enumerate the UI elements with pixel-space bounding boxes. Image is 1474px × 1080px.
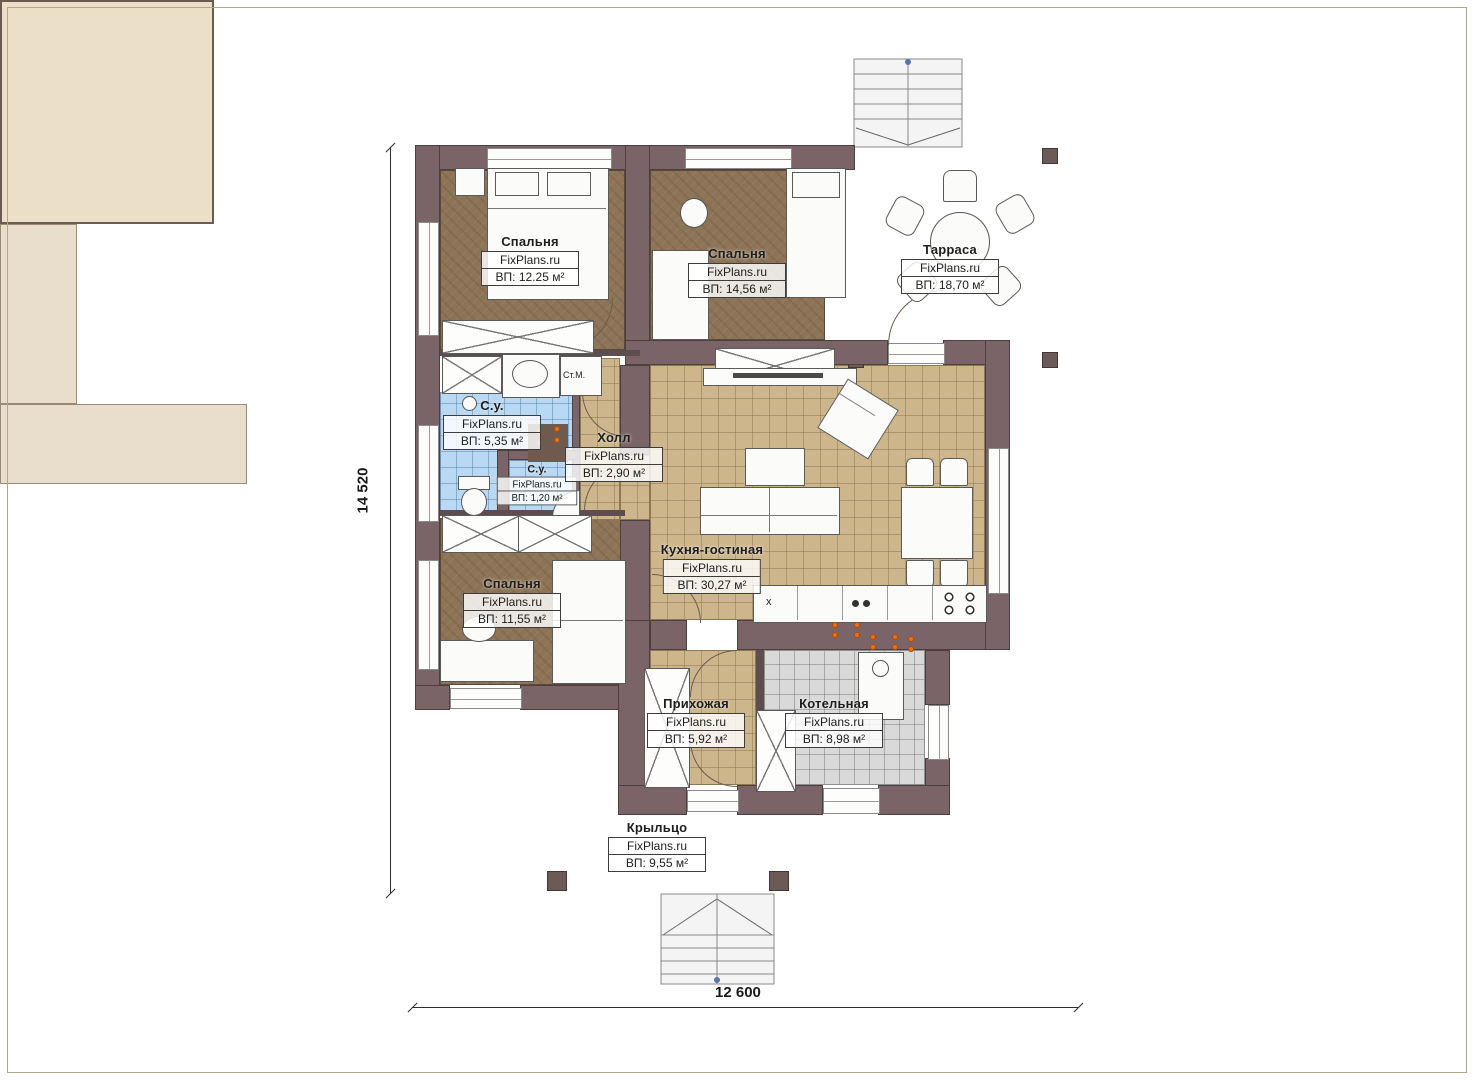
window [823,788,880,814]
wall [625,145,650,365]
room-name: Кухня-гостиная [661,542,763,557]
pillow [792,172,840,198]
room-name: Холл [565,430,663,445]
room-info-box: FixPlans.ru ВП: 11,55 м² [463,593,561,628]
window [988,448,1009,594]
dimension-width-label: 12 600 [715,984,761,1001]
room-info-box: FixPlans.ru ВП: 5,35 м² [443,415,541,450]
room-brand: FixPlans.ru [566,448,662,465]
room-info-box: FixPlans.ru ВП: 30,27 м² [663,559,761,594]
coffee-table [745,448,805,486]
room-brand: FixPlans.ru [689,264,785,281]
window [450,688,522,709]
dimension-height-label: 14 520 [354,468,371,514]
room-area: ВП: 18,70 м² [902,277,998,293]
chair-icon [943,170,977,202]
room-info-box: FixPlans.ru ВП: 2,90 м² [565,447,663,482]
chair-icon [940,560,968,588]
wall [415,685,450,710]
room-label-terrace: Тарраса FixPlans.ru ВП: 18,70 м² [901,242,999,294]
room-name: Тарраса [901,242,999,257]
counter-divider [842,586,843,620]
room-info-box: FixPlans.ru ВП: 8,98 м² [785,713,883,748]
room-brand: FixPlans.ru [648,714,744,731]
radiator-dot [554,426,560,432]
room-label-boiler: Котельная FixPlans.ru ВП: 8,98 м² [785,696,883,748]
room-name: Спальня [463,576,561,591]
window [685,148,792,169]
terrace-post [1042,352,1058,368]
cabinet-icon [442,356,502,394]
sink-bowl-icon [512,360,548,388]
blanket-line [488,208,606,209]
terrace-stairs [853,58,963,148]
dimension-line-horizontal [412,1007,1078,1008]
heater-dot [892,644,898,650]
room-brand: FixPlans.ru [444,416,540,433]
heater-dot [892,634,898,640]
room-brand: FixPlans.ru [464,594,560,611]
room-name: Спальня [481,234,579,249]
chair-icon [940,458,968,486]
room-info-box: FixPlans.ru ВП: 18,70 м² [901,259,999,294]
tv-icon [733,373,823,378]
dimension-line-vertical [390,147,391,893]
room-label-bedroom-2: Спальня FixPlans.ru ВП: 14,56 м² [688,246,786,298]
terrace-floor [0,0,214,224]
pillow [547,172,591,196]
sofa-line [553,620,623,621]
nightstand [455,168,485,196]
window [418,560,439,670]
wall [925,650,950,705]
room-info-box: FixPlans.ru ВП: 5,92 м² [647,713,745,748]
window [418,222,439,336]
chair-icon [906,458,934,486]
chair-icon [906,560,934,588]
heater-dot [870,644,876,650]
room-brand: FixPlans.ru [482,252,578,269]
room-area: ВП: 8,98 м² [786,731,882,747]
room-brand: FixPlans.ru [902,260,998,277]
counter-divider [932,586,933,620]
porch-post [547,871,567,891]
wardrobe-icon [518,515,592,553]
porch-stairs [660,893,775,985]
room-name: Прихожая [647,696,745,711]
counter-mark: x [766,596,772,608]
window [487,148,612,169]
counter-divider [887,586,888,620]
wardrobe-icon [442,515,520,553]
room-name: Крыльцо [608,820,706,835]
room-label-bedroom-1: Спальня FixPlans.ru ВП: 12.25 м² [481,234,579,286]
room-label-porch: Крыльцо FixPlans.ru ВП: 9,55 м² [608,820,706,872]
wardrobe-icon [442,320,594,354]
heater-dot [832,632,838,638]
room-label-bedroom-3: Спальня FixPlans.ru ВП: 11,55 м² [463,576,561,628]
room-label-kitchen-living: Кухня-гостиная FixPlans.ru ВП: 30,27 м² [661,542,763,594]
window [418,425,439,522]
room-area: ВП: 12.25 м² [482,269,578,285]
sofa-divider [769,488,770,532]
room-brand: FixPlans.ru [609,838,705,855]
room-name: Котельная [785,696,883,711]
room-label-hall: Холл FixPlans.ru ВП: 2,90 м² [565,430,663,482]
heater-dot [854,622,860,628]
pillow [495,172,539,196]
sofa [700,487,840,535]
toilet-bowl-icon [461,488,487,516]
room-area: ВП: 11,55 м² [464,611,560,627]
room-area: ВП: 30,27 м² [664,577,760,593]
radiator-dot [554,437,560,443]
room-area: ВП: 5,92 м² [648,731,744,747]
wall [618,785,687,815]
floor-plan-canvas: Ст.М. x [0,0,1474,1080]
heater-dot [908,636,914,642]
sink-dot-icon [863,600,870,607]
room-area: ВП: 9,55 м² [609,855,705,871]
stove-icon [938,589,982,617]
entry-door [687,790,739,812]
window [928,705,949,760]
dining-table [901,487,973,559]
sofa [552,560,626,684]
sink-dot-icon [852,600,859,607]
heater-dot [908,646,914,652]
terrace-post [1042,148,1058,164]
terrace-door-opening [888,343,945,364]
counter-divider [797,586,798,620]
chair-icon [680,198,708,228]
room-name: Спальня [688,246,786,261]
washing-machine-label: Ст.М. [563,370,585,380]
room-name: С.у. [443,398,541,413]
room-brand: FixPlans.ru [664,560,760,577]
boiler-gauge-icon [872,660,889,677]
wall [878,785,950,815]
room-area: ВП: 14,56 м² [689,281,785,297]
room-label-bathroom-1: С.у. FixPlans.ru ВП: 5,35 м² [443,398,541,450]
room-info-box: FixPlans.ru ВП: 14,56 м² [688,263,786,298]
room-label-entry: Прихожая FixPlans.ru ВП: 5,92 м² [647,696,745,748]
desk [440,640,534,682]
room-info-box: FixPlans.ru ВП: 9,55 м² [608,837,706,872]
room-info-box: FixPlans.ru ВП: 12.25 м² [481,251,579,286]
room-area: ВП: 5,35 м² [444,433,540,449]
heater-dot [854,632,860,638]
wall [650,620,687,650]
heater-dot [870,634,876,640]
heater-dot [832,622,838,628]
porch-post [769,871,789,891]
room-brand: FixPlans.ru [786,714,882,731]
room-area: ВП: 1,20 м² [498,491,577,504]
room-area: ВП: 2,90 м² [566,465,662,481]
